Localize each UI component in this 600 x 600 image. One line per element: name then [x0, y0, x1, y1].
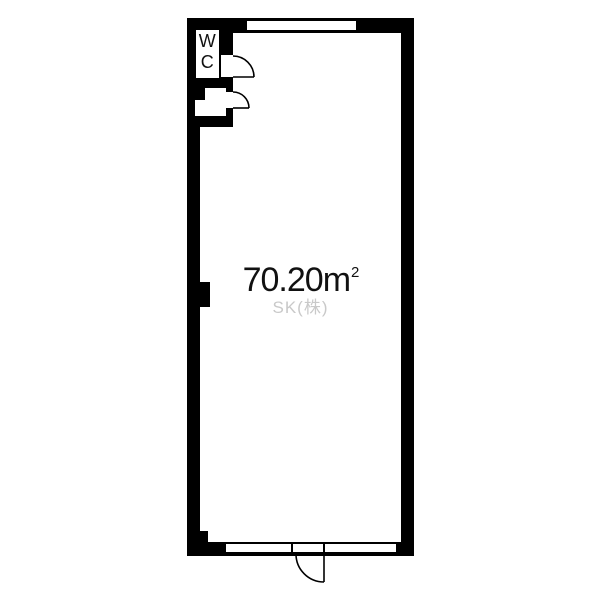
area-label: 70.20m2 [200, 261, 401, 300]
entry-door-arc [296, 554, 324, 582]
entry-door-jamb-left [291, 543, 293, 553]
pillar-bottom-left [198, 531, 208, 543]
entry-door-jamb-right [323, 543, 325, 553]
wc-room-label: WC [196, 31, 219, 73]
area-exponent: 2 [351, 264, 359, 281]
floorplan: SK(株) 70.20m2 WC [0, 0, 600, 600]
area-unit: m [323, 261, 350, 299]
area-value: 70.20 [243, 261, 323, 299]
wc-door-opening [221, 55, 233, 77]
window-bottom [225, 543, 397, 553]
window-top [246, 20, 357, 31]
closet-door-opening [221, 92, 233, 108]
